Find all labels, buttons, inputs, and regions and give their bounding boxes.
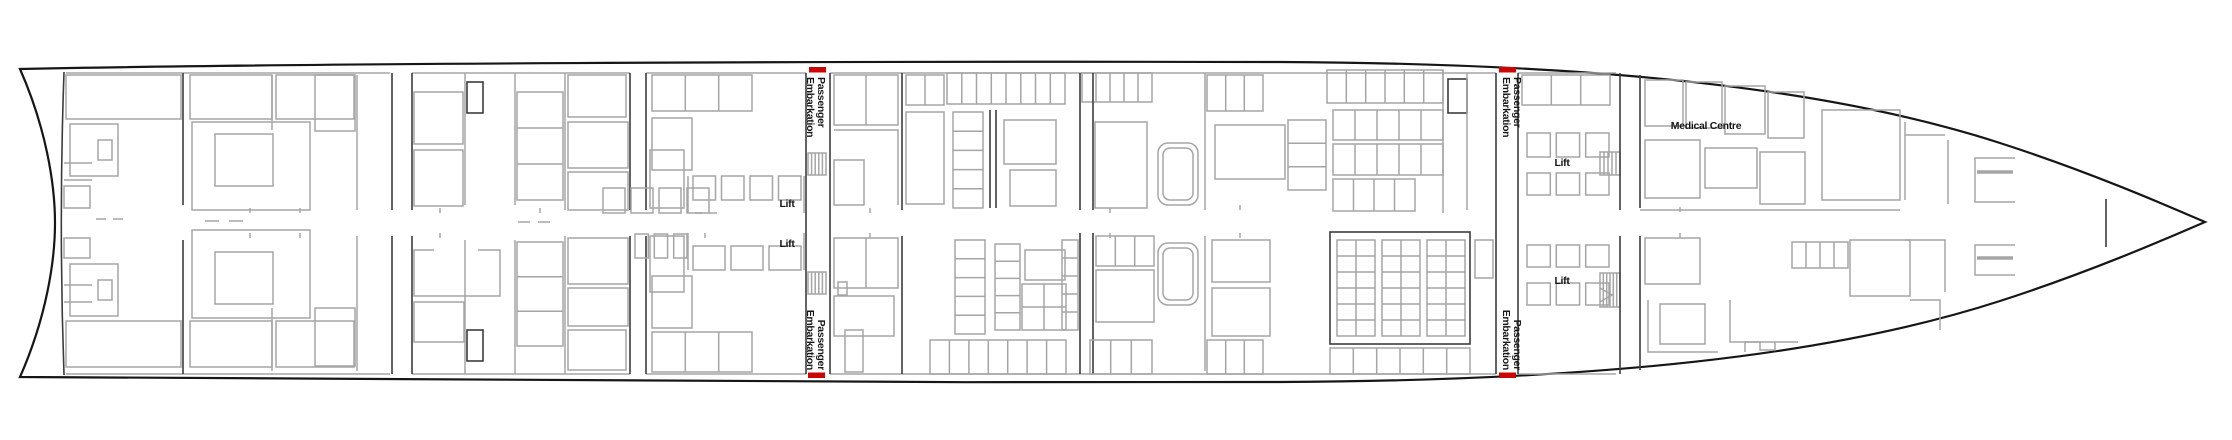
- svg-text:Embarkation: Embarkation: [804, 310, 816, 370]
- passenger-embarkation-label-bottom-right: Passenger Embarkation: [1500, 310, 1523, 371]
- embarkation-marker-top-right: [1499, 67, 1516, 73]
- lift-label-top-left: Lift: [779, 198, 795, 210]
- svg-text:Embarkation: Embarkation: [804, 77, 816, 137]
- lift-label-bottom-left: Lift: [779, 238, 795, 250]
- deck-plan: Passenger Embarkation Passenger Embarkat…: [0, 0, 2232, 440]
- embarkation-marker-top-left: [809, 67, 826, 73]
- medical-centre-label: Medical Centre: [1671, 120, 1742, 132]
- passenger-embarkation-label-bottom-left: Passenger Embarkation: [804, 310, 827, 371]
- lift-label-bottom-right: Lift: [1554, 275, 1570, 287]
- lift-label-top-right: Lift: [1554, 157, 1570, 169]
- svg-text:Embarkation: Embarkation: [1500, 77, 1512, 137]
- svg-text:Embarkation: Embarkation: [1500, 310, 1512, 370]
- embarkation-marker-bottom-right: [1499, 373, 1516, 379]
- embarkation-marker-bottom-left: [808, 373, 825, 379]
